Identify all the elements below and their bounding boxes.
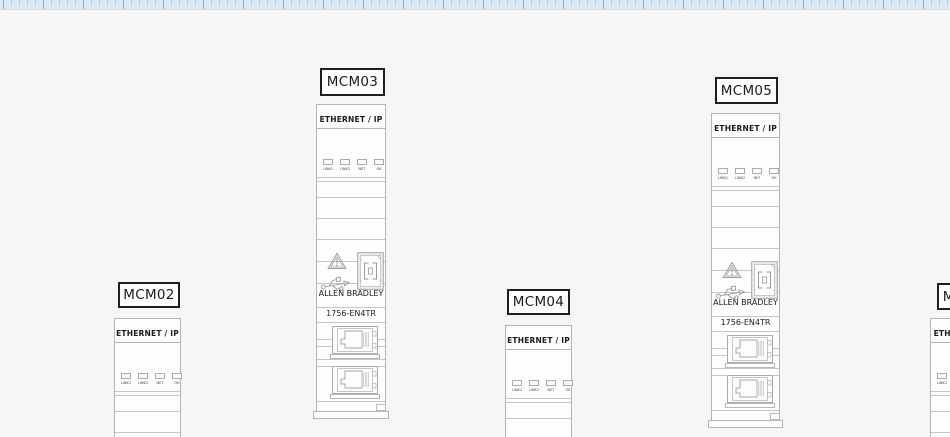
model-text: 1756-EN4TR	[712, 318, 779, 327]
section-divider-line	[317, 218, 385, 219]
module-label-mcm06[interactable]: MCM06	[937, 283, 950, 310]
section-divider-line	[317, 177, 385, 178]
module-header: ETHERNET / IP	[317, 111, 385, 129]
section-divider-line	[712, 368, 779, 369]
module-drawing-mcm02[interactable]: ETHERNET / IPLINK1LINK2NETOKALLEN BRADLE…	[114, 318, 181, 437]
led-labels-row: LINK1LINK2NETOK	[506, 388, 573, 393]
module-drawing-mcm04[interactable]: ETHERNET / IPLINK1LINK2NETOKALLEN BRADLE…	[505, 325, 572, 437]
led-label: OK	[174, 381, 179, 385]
section-divider-line	[712, 316, 779, 317]
module-label-mcm05[interactable]: MCM05	[715, 77, 778, 104]
module-label-text: MCM03	[327, 74, 378, 90]
module-header-text: ETHERNET / IP	[116, 329, 179, 338]
sd-card-icon	[357, 252, 384, 294]
section-divider-line	[317, 239, 385, 240]
module-header: ETHERNET / IP	[115, 325, 180, 343]
bottom-notch	[376, 404, 386, 411]
led-labels-row: LINK1LINK2NETOK	[712, 176, 781, 181]
section-divider-line	[712, 190, 779, 191]
section-divider-line	[317, 322, 385, 323]
status-led	[769, 168, 779, 174]
led-label: OK	[376, 167, 381, 171]
section-divider-line	[317, 181, 385, 182]
status-led	[374, 159, 384, 165]
module-label-text: MCM05	[721, 83, 772, 99]
section-divider-line	[931, 432, 950, 433]
led-label: LINK2	[529, 388, 539, 392]
led-label: LINK1	[937, 381, 947, 385]
status-led	[735, 168, 745, 174]
led-labels-row: LINK1LINK2NETOK	[317, 167, 387, 172]
status-led	[340, 159, 350, 165]
model-text: 1756-EN4TR	[317, 309, 385, 318]
section-divider-line	[115, 432, 180, 433]
module-drawing-mcm03[interactable]: ETHERNET / IPLINK1LINK2NETOKALLEN BRADLE…	[316, 104, 386, 419]
module-header: ETHERNET / IP	[506, 332, 571, 350]
module-label-text: MCM04	[513, 294, 564, 310]
status-led	[121, 373, 131, 379]
bottom-notch	[770, 413, 780, 420]
ethernet-port-base	[725, 363, 775, 368]
section-divider-line	[931, 395, 950, 396]
section-divider-line	[317, 401, 385, 402]
status-led	[529, 380, 539, 386]
led-label: LINK2	[340, 167, 350, 171]
module-label-text: MCM06	[943, 289, 950, 305]
led-label: OK	[565, 388, 570, 392]
led-label: NET	[157, 381, 164, 385]
module-bottom-strip	[313, 411, 389, 419]
section-divider-line	[712, 206, 779, 207]
section-divider-line	[317, 359, 385, 360]
led-label: NET	[754, 176, 761, 180]
led-labels-row: LINK1LINK2NETOK	[931, 381, 950, 386]
led-label: LINK1	[121, 381, 131, 385]
horizontal-ruler	[0, 0, 950, 10]
drawing-canvas: MCM02ETHERNET / IPLINK1LINK2NETOKALLEN B…	[0, 0, 950, 437]
module-header-text: ETHERNET / IP	[714, 124, 777, 133]
led-label: LINK2	[138, 381, 148, 385]
status-led	[937, 373, 947, 379]
led-label: OK	[771, 176, 776, 180]
section-divider-line	[712, 410, 779, 411]
section-divider-line	[712, 248, 779, 249]
section-divider-line	[712, 186, 779, 187]
sd-card-icon	[751, 261, 778, 303]
status-led	[546, 380, 556, 386]
ethernet-port-base	[330, 354, 380, 359]
module-header-text: ETHERNET / IP	[320, 115, 383, 124]
status-led	[752, 168, 762, 174]
status-led	[357, 159, 367, 165]
module-drawing-mcm06[interactable]: ETHERNET / IPLINK1LINK2NETOKALLEN BRADLE…	[930, 318, 950, 437]
brand-text: ALLEN BRADLEY	[712, 298, 779, 307]
module-header: ETHERNET / IP	[712, 120, 779, 138]
brand-text: ALLEN BRADLEY	[317, 289, 385, 298]
module-header: ETHERNET / IP	[931, 325, 950, 343]
module-label-mcm02[interactable]: MCM02	[118, 282, 180, 308]
section-divider-line	[317, 307, 385, 308]
section-divider-line	[115, 395, 180, 396]
status-led	[512, 380, 522, 386]
section-divider-line	[506, 418, 571, 419]
section-divider-line	[712, 227, 779, 228]
led-label: LINK2	[735, 176, 745, 180]
led-label: LINK1	[323, 167, 333, 171]
module-label-mcm04[interactable]: MCM04	[507, 289, 570, 315]
section-divider-line	[931, 411, 950, 412]
section-divider-line	[115, 391, 180, 392]
module-header-text: ETHERNET / IP	[507, 336, 570, 345]
led-labels-row: LINK1LINK2NETOK	[115, 381, 182, 386]
status-led	[138, 373, 148, 379]
led-label: LINK1	[512, 388, 522, 392]
led-label: NET	[359, 167, 366, 171]
section-divider-line	[506, 402, 571, 403]
module-header-text: ETHERNET / IP	[934, 329, 950, 338]
section-divider-line	[712, 331, 779, 332]
section-divider-line	[506, 398, 571, 399]
section-divider-line	[115, 411, 180, 412]
module-label-mcm03[interactable]: MCM03	[320, 68, 385, 96]
status-led	[172, 373, 182, 379]
module-bottom-strip	[708, 420, 783, 428]
module-label-text: MCM02	[123, 287, 174, 303]
module-drawing-mcm05[interactable]: ETHERNET / IPLINK1LINK2NETOKALLEN BRADLE…	[711, 113, 780, 428]
status-led	[563, 380, 573, 386]
status-led	[323, 159, 333, 165]
led-label: LINK1	[718, 176, 728, 180]
led-label: NET	[548, 388, 555, 392]
section-divider-line	[317, 197, 385, 198]
ethernet-port-base	[330, 394, 380, 399]
ethernet-port-base	[725, 403, 775, 408]
status-led	[155, 373, 165, 379]
section-divider-line	[931, 391, 950, 392]
status-led	[718, 168, 728, 174]
